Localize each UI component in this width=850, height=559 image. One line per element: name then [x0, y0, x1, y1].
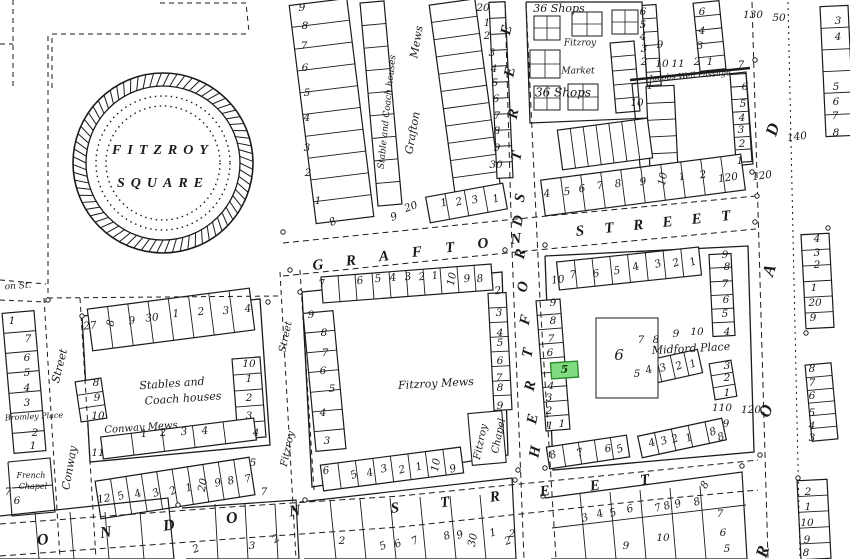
street-name-letter: E	[588, 477, 601, 494]
plot-number: 3	[324, 435, 331, 447]
plot-number: 4	[698, 25, 706, 37]
corner-post	[288, 268, 292, 272]
place-label: 36 Shops	[533, 2, 585, 15]
plot-number: 8	[302, 20, 309, 32]
street-name-letter: D	[161, 516, 176, 535]
street-name-letter: O	[36, 531, 50, 550]
plot-number: 6	[302, 62, 309, 74]
corner-post	[266, 300, 270, 304]
plot-number: 20	[402, 199, 420, 215]
plot-number: 140	[786, 130, 808, 145]
place-label: French	[16, 471, 46, 480]
corner-post	[826, 226, 830, 230]
place-label: Stables and	[139, 375, 205, 393]
street-name-letter: O	[225, 509, 239, 528]
block-outline	[557, 118, 652, 170]
plot-number: 2	[813, 259, 821, 271]
street-name-letter: F	[410, 244, 423, 261]
plot-number: 4	[243, 303, 252, 316]
plot-number: 4	[547, 380, 555, 392]
corner-post	[543, 243, 547, 247]
plot-number: 5	[740, 98, 747, 110]
street-name-letter: N	[287, 502, 303, 521]
plot-number: 3	[304, 142, 311, 154]
plot-number: 7	[722, 278, 729, 290]
corner-post	[753, 58, 757, 62]
plot-number: 10	[242, 358, 256, 370]
plot-number: 5	[250, 457, 257, 469]
plot-number: 9	[128, 315, 136, 328]
plot-number: 1	[737, 155, 744, 167]
plot-number: 9	[810, 312, 817, 324]
plot-number: 4	[303, 112, 311, 124]
plot-number: 3	[222, 305, 230, 318]
corner-post	[796, 476, 800, 480]
plot-divider	[580, 494, 586, 559]
plot-number: 8	[442, 529, 453, 543]
plot-number: 9	[308, 309, 315, 321]
plot-number: 1	[805, 501, 812, 513]
plot-number: 7	[548, 333, 555, 345]
street-name-letter: E	[661, 214, 674, 231]
plot-number: 6	[320, 365, 327, 377]
plot-number: 1	[30, 440, 37, 452]
corner-post	[804, 331, 808, 335]
plot-number: 5	[492, 77, 499, 89]
street-name-letter: R	[344, 253, 357, 270]
plot-number: 10	[655, 58, 669, 70]
block-outline	[289, 0, 374, 224]
place-label: on St.	[4, 281, 31, 293]
plot-number: 10	[656, 532, 670, 544]
street-name-letter: R	[488, 489, 501, 506]
plot-number: 6	[723, 294, 730, 306]
plot-number: 2	[640, 56, 648, 68]
map-svg: FITZROYSQUARE5GRAFTONSTREETHERTFORDSTREE…	[0, 0, 850, 559]
plot-number: 10	[800, 517, 814, 529]
plot-number: 9	[623, 540, 630, 552]
plot-number: 1	[488, 526, 498, 539]
street-name-letter: T	[639, 472, 651, 489]
plot-number: 4	[813, 233, 821, 245]
plot-number: 4	[252, 427, 260, 439]
plot-number: 30	[145, 311, 160, 324]
plot-number: 12	[96, 492, 112, 506]
plot-number: 120	[751, 169, 773, 184]
plot-divider	[330, 500, 336, 559]
street-line	[505, 2, 524, 559]
plot-number: 20	[807, 297, 822, 309]
plot-number: 3	[724, 360, 731, 372]
plot-number: 2	[158, 427, 167, 440]
street-name-letter: T	[508, 149, 526, 162]
street-name-letter: T	[445, 240, 457, 257]
plot-number: 3	[835, 15, 842, 27]
plot-divider	[450, 496, 456, 559]
place-label: Street	[49, 347, 70, 384]
plot-number: 2	[483, 30, 491, 42]
street-name-letter: F	[517, 313, 535, 327]
plot-divider	[700, 486, 706, 559]
street-name-letter: D	[761, 121, 783, 140]
plot-number: 5	[809, 407, 816, 419]
plot-number: 1	[9, 315, 16, 327]
plot-number: 3	[496, 307, 503, 319]
plot-divider	[420, 497, 426, 559]
corner-post	[753, 220, 757, 224]
plot-number: 5	[634, 368, 641, 380]
plot-divider	[360, 499, 366, 559]
plot-number: 6	[24, 352, 31, 364]
plot-number: 11	[671, 58, 684, 70]
street-name-letter: H	[526, 443, 545, 460]
plot-number: 3	[809, 432, 816, 444]
plot-number: 2	[545, 405, 553, 417]
plot-number: 5	[24, 367, 31, 379]
plot-number: 1	[707, 56, 714, 68]
plot-number: 5	[497, 337, 504, 349]
plot-number: 8	[724, 261, 731, 273]
plot-number: 9	[389, 210, 400, 224]
plot-number: 8	[809, 363, 816, 375]
street-name-letter: G	[312, 257, 325, 274]
plot-number: 9	[804, 534, 811, 546]
plot-number: 9	[673, 497, 684, 511]
plot-number: 2	[723, 372, 731, 384]
street-name-letter: E	[538, 483, 551, 500]
street-name-letter: S	[512, 192, 529, 203]
plot-number: 11	[91, 447, 104, 459]
plot-number: 6	[640, 6, 647, 18]
corner-post	[281, 230, 285, 234]
plot-number: 3	[489, 47, 496, 59]
plot-number: 4	[490, 63, 498, 75]
plot-number: 3	[697, 40, 704, 52]
corner-post	[516, 468, 520, 472]
plot-number: 2	[196, 306, 205, 319]
street-name-letter: N	[98, 523, 114, 542]
place-label: Mews	[407, 24, 426, 60]
plot-number: 8	[833, 127, 840, 139]
plot-number: 9	[94, 392, 101, 404]
plot-number: 1	[811, 282, 818, 294]
plot-number: 9	[497, 400, 504, 412]
plot-number: 2	[304, 167, 312, 179]
corner-post	[513, 478, 517, 482]
plot-number: 6	[625, 502, 636, 516]
plot-number: 8	[653, 334, 660, 346]
place-label: Grafton	[402, 111, 422, 155]
plot-number: 1	[140, 428, 148, 441]
plot-divider	[215, 504, 218, 559]
street-line	[0, 300, 46, 302]
plot-divider	[245, 504, 248, 559]
corner-post	[543, 466, 547, 470]
plot-number: 8	[321, 327, 328, 339]
plot-number: 5	[329, 383, 336, 395]
corner-post	[755, 194, 759, 198]
street-name-letter: O	[514, 280, 532, 294]
corner-post	[740, 464, 744, 468]
plot-number: 6	[809, 390, 816, 402]
plot-number: 50	[772, 12, 786, 24]
plot-number: 3	[641, 43, 648, 55]
plot-number: 20	[196, 477, 210, 494]
street-name-letter: A	[377, 248, 390, 265]
plot-number: 120	[741, 404, 761, 416]
plot-number: 1	[647, 80, 654, 92]
plot-number: 5	[377, 539, 388, 553]
place-label: Coach houses	[144, 389, 222, 407]
plot-number: 7	[738, 59, 745, 71]
plot-number: 30	[489, 159, 503, 171]
place-label: Conway	[59, 444, 80, 491]
square-name: FITZROY	[111, 143, 214, 158]
plot-number: 7	[809, 377, 816, 389]
street-line	[160, 3, 249, 32]
plot-number: 5	[833, 81, 840, 93]
plot-number: 4	[200, 425, 209, 438]
plot-number: 7	[409, 534, 420, 548]
plot-number: 3	[814, 247, 821, 259]
plot-number: 6	[493, 93, 500, 105]
street-name-letter: R	[751, 543, 773, 559]
plot-number: 9	[550, 297, 557, 309]
plot-number: 10	[429, 457, 443, 473]
fitzroy-square-outer	[73, 73, 253, 253]
plot-outline	[596, 318, 658, 398]
plot-number: 6	[392, 537, 403, 551]
plot-number: 2	[31, 427, 39, 439]
plot-number: 27	[82, 319, 98, 332]
corner-post	[46, 298, 50, 302]
corner-post	[503, 248, 507, 252]
plot-number: 4	[23, 382, 31, 394]
corner-post	[303, 498, 307, 502]
plot-number: 10	[91, 410, 105, 422]
plot-number: 10	[690, 326, 704, 338]
place-label: Market	[560, 67, 595, 77]
plot-number: 5	[608, 506, 619, 520]
corner-post	[298, 290, 302, 294]
street-name-letter: O	[477, 235, 490, 252]
plot-number: 130	[743, 9, 763, 21]
plot-number: 5	[304, 87, 311, 99]
plot-number: 4	[319, 407, 327, 419]
plot-number: 6	[699, 6, 706, 18]
plot-number: 7	[301, 40, 308, 52]
plot-number: 3	[246, 410, 253, 422]
street-name-letter: N	[509, 231, 524, 248]
street-name-letter: E	[524, 412, 542, 426]
plot-number: 7	[25, 333, 32, 345]
street-name-letter: T	[439, 494, 451, 511]
place-label: Fitzroy Mews	[397, 375, 475, 392]
plot-number: 7	[5, 486, 12, 498]
place-label: Bromley Place	[4, 410, 64, 422]
plot-number: 2	[338, 535, 346, 547]
plot-number: 9	[299, 2, 306, 14]
street-name-letter: R	[512, 247, 530, 261]
plot-number: 2	[693, 56, 701, 68]
plot-number: 2	[269, 532, 282, 546]
plot-number: 30	[466, 532, 480, 548]
plot-number: 1	[315, 195, 322, 207]
plot-number: 1	[559, 418, 566, 430]
street-name-letter: S	[390, 500, 400, 517]
plot-number: 8	[803, 547, 810, 559]
plot-number: 4	[834, 31, 842, 43]
plot-number: 1	[547, 420, 554, 432]
place-label: 36 Shops	[535, 86, 591, 100]
street-name-letter: D	[509, 214, 527, 229]
street-name-letter: E	[690, 211, 703, 228]
street-name-letter: T	[519, 346, 537, 359]
street-name-letter: A	[758, 262, 780, 280]
plot-number: 4	[738, 112, 746, 124]
place-label: Fitzroy	[279, 430, 297, 469]
plot-number: 7	[638, 334, 645, 346]
plot-number: 5	[722, 308, 729, 320]
corner-post	[758, 453, 762, 457]
plot-number: 6	[720, 527, 727, 539]
street-name-letter: R	[522, 379, 540, 393]
plot-number: 4	[723, 326, 731, 338]
square-name: SQUARE	[117, 176, 209, 191]
plot-number: 8	[494, 125, 501, 137]
plot-number: 2	[738, 138, 746, 150]
plot-number: 7	[494, 110, 501, 122]
plot-number: 2	[804, 486, 812, 498]
plot-number: 6	[833, 96, 840, 108]
plot-number: 9	[494, 142, 501, 154]
plot-number: 3	[580, 511, 591, 525]
highlighted-plot-number: 5	[561, 363, 569, 376]
plot-number: 5	[640, 19, 647, 31]
plot-number: 6	[742, 81, 749, 93]
plot-number: 6	[497, 355, 504, 367]
street-name-letter: S	[575, 223, 585, 240]
plot-number: 2	[493, 285, 503, 298]
plot-number: 8	[550, 315, 557, 327]
plot-number: 3	[249, 540, 256, 552]
corner-post	[80, 314, 84, 318]
plot-number: 7	[322, 347, 329, 359]
plot-number: 4	[639, 31, 647, 43]
plot-number: 2	[508, 528, 516, 540]
street-name-letter: T	[604, 220, 616, 237]
plot-number: 7	[832, 110, 839, 122]
plot-number: 9	[455, 528, 466, 542]
place-label: Street	[277, 319, 295, 353]
plot-number: 6	[614, 346, 624, 364]
place-label: Midford Place	[650, 340, 731, 357]
street-name-letter: R	[632, 217, 645, 234]
plot-number: 6	[14, 495, 21, 507]
street-name-letter: T	[721, 208, 733, 225]
plot-number: 1	[246, 373, 253, 385]
plot-number: 9	[673, 328, 680, 340]
street-line	[752, 2, 768, 559]
plot-number: 10	[630, 97, 644, 109]
map-canvas: FITZROYSQUARE5GRAFTONSTREETHERTFORDSTREE…	[0, 0, 850, 559]
plot-number: 8	[497, 382, 504, 394]
plot-divider	[140, 512, 144, 559]
plot-number: 9	[723, 418, 730, 430]
place-label: Chapel	[19, 482, 48, 491]
plot-number: 10	[551, 273, 566, 287]
place-label: Fitzroy	[563, 39, 597, 49]
plot-number: 5	[724, 543, 731, 555]
plot-divider	[480, 495, 486, 559]
plot-number: 9	[657, 39, 664, 51]
plot-number: 110	[712, 402, 732, 414]
plot-number: 7	[261, 486, 268, 498]
plot-number: 9	[722, 249, 729, 261]
plot-number: 2	[190, 542, 202, 556]
plot-number: 10	[445, 271, 459, 287]
plot-number: 1	[484, 17, 491, 29]
plot-number: 1	[172, 308, 180, 321]
plot-number: 4	[808, 420, 816, 432]
plot-number: 8	[93, 377, 100, 389]
plot-number: 20	[475, 2, 490, 14]
plot-number: 3	[24, 397, 31, 409]
plot-number: 2	[245, 392, 253, 404]
plot-number: 3	[180, 426, 188, 439]
plot-number: 4	[594, 507, 605, 521]
plot-divider	[610, 492, 616, 559]
plot-number: 7	[717, 508, 724, 520]
plot-number: 10	[656, 171, 670, 187]
plot-number: 1	[724, 387, 731, 399]
plot-number: 3	[738, 124, 745, 136]
plot-number: 6	[547, 347, 554, 359]
plot-number: 3	[546, 392, 553, 404]
corner-post	[176, 503, 180, 507]
